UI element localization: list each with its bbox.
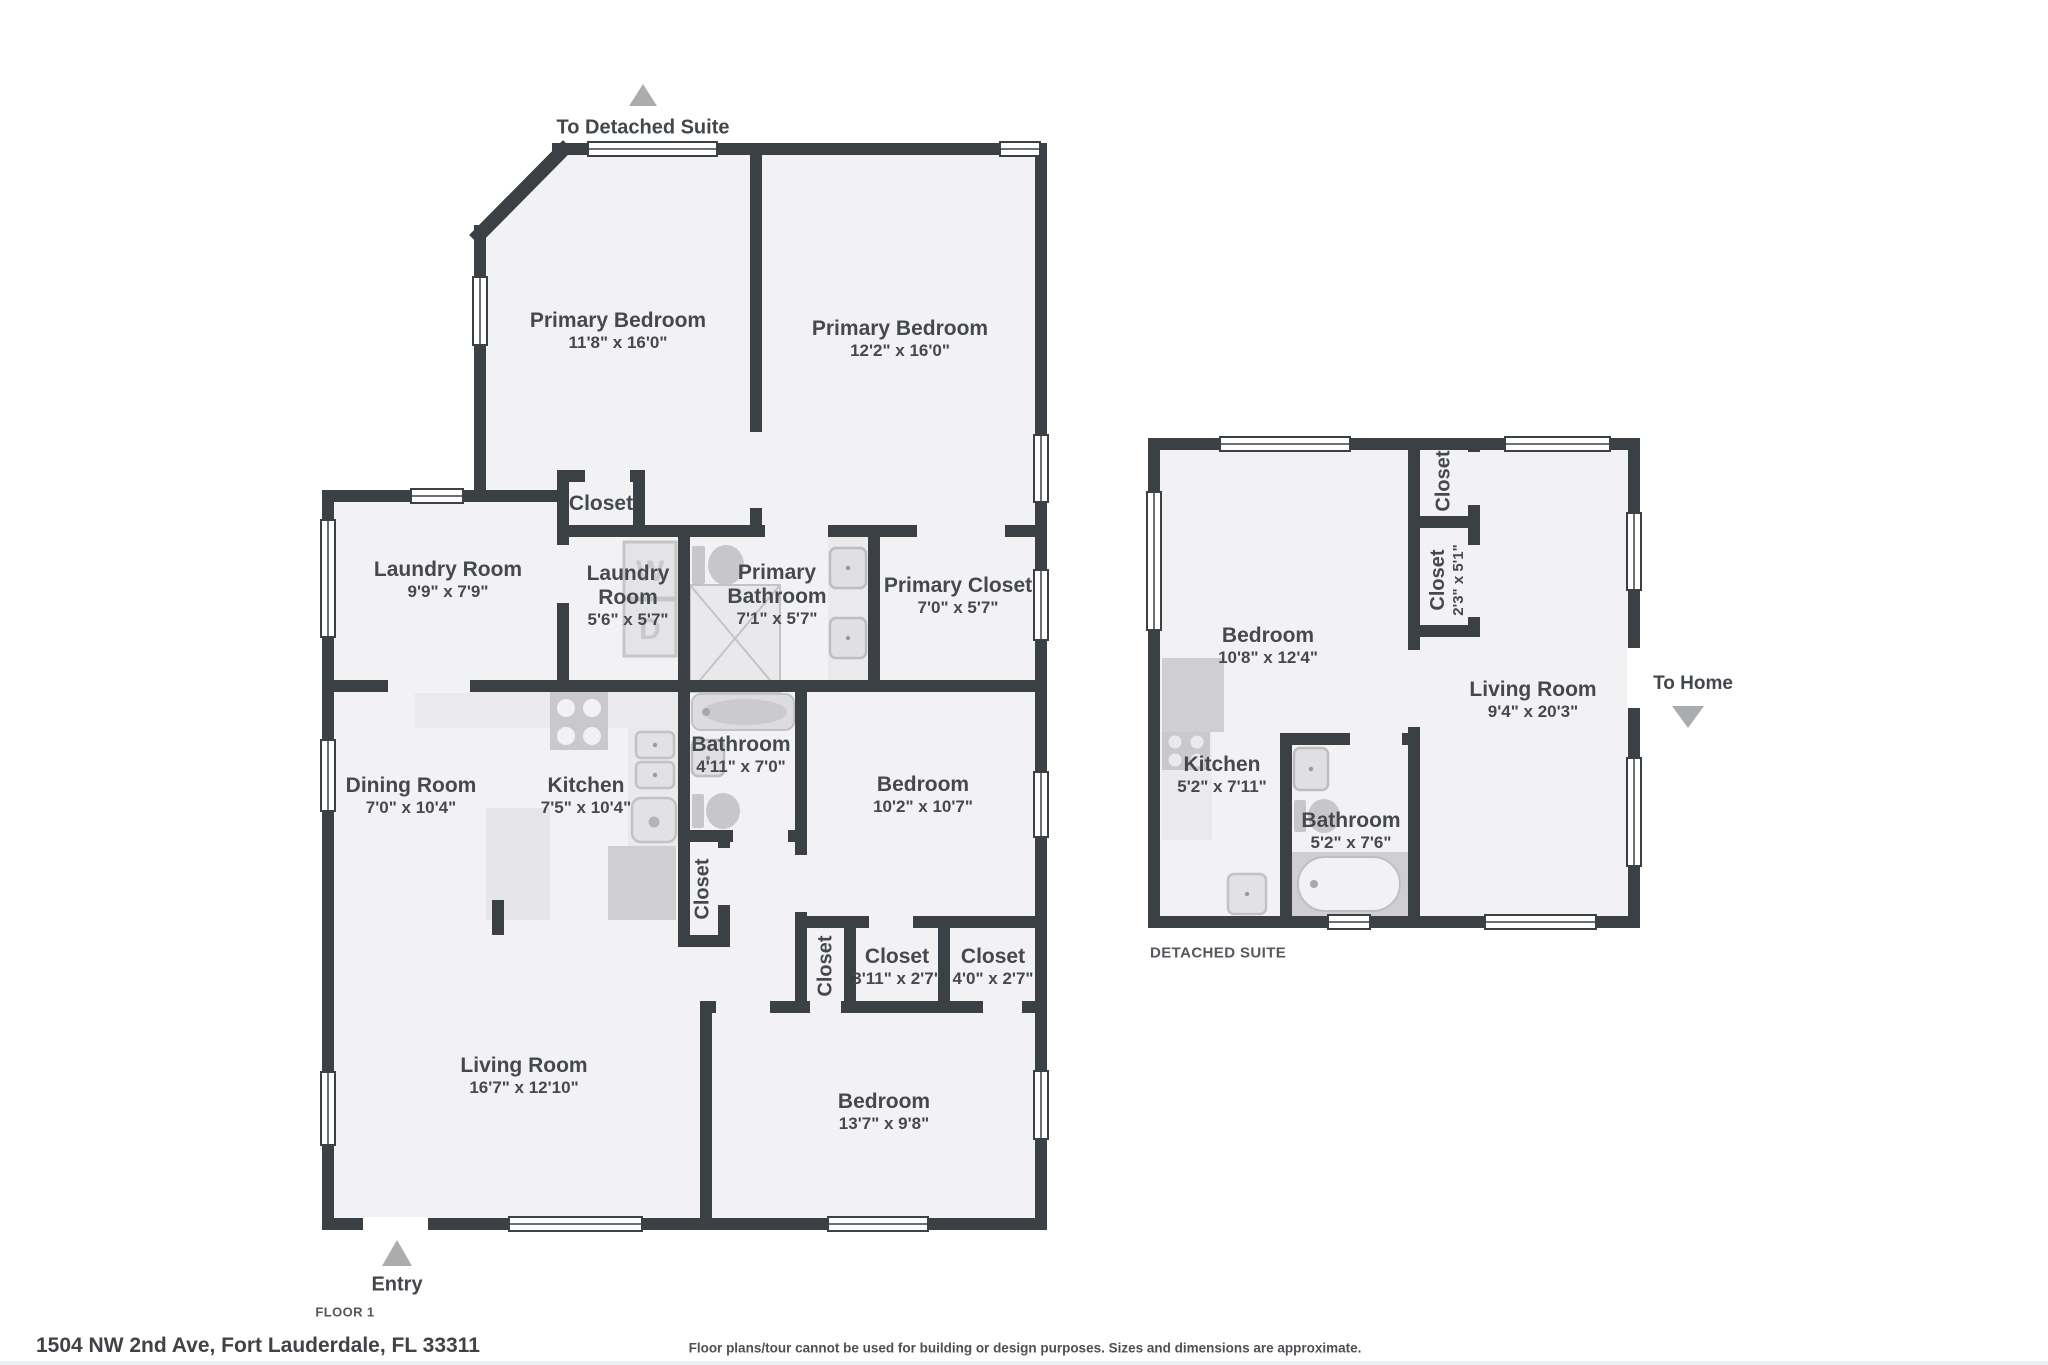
room-label-suite-living-room: Living Room 9'4" x 20'3" [1469,678,1596,722]
property-address: 1504 NW 2nd Ave, Fort Lauderdale, FL 333… [36,1334,480,1358]
room-label-bedroom-middle: Bedroom 10'2" x 10'7" [873,773,973,817]
room-label-closet-311: Closet 3'11" x 2'7" [852,945,941,989]
room-label-suite-bedroom: Bedroom 10'8" x 12'4" [1218,624,1318,668]
bottom-edge-divider [0,1361,2048,1365]
room-label-primary-bedroom-right: Primary Bedroom 12'2" x 16'0" [812,317,988,361]
disclaimer-text: Floor plans/tour cannot be used for buil… [689,1341,1362,1356]
kitchen-counter [415,692,678,728]
suite-bathtub-icon [1292,852,1408,916]
fridge-icon [608,846,676,920]
suite-fridge-icon [1162,658,1224,732]
room-label-primary-closet: Primary Closet 7'0" x 5'7" [884,574,1032,618]
room-label-closet-hall: Closet [692,858,715,919]
room-label-living-room: Living Room 16'7" x 12'10" [460,1054,587,1098]
room-label-closet-small: Closet [815,935,838,996]
room-label-laundry-room-large: Laundry Room 9'9" x 7'9" [374,558,522,602]
room-label-primary-bedroom-left: Primary Bedroom 11'8" x 16'0" [530,309,706,353]
bath-toilet-icon [692,793,740,829]
room-label-kitchen: Kitchen 7'5" x 10'4" [541,774,631,818]
detached-suite-caption: DETACHED SUITE [1150,945,1286,962]
suite-bath-sink-icon [1294,748,1328,790]
suite-kitchen-sink-icon [1228,874,1266,914]
entry-arrow-icon [382,1240,412,1266]
room-label-suite-bathroom: Bathroom 5'2" x 7'6" [1301,809,1400,853]
room-label-bathroom: Bathroom 4'11" x 7'0" [691,733,790,777]
stove-icon [550,692,608,750]
prep-sink-icon [632,798,676,842]
room-label-bedroom-bottom: Bedroom 13'7" x 9'8" [838,1090,930,1134]
room-label-closet-top: Closet [569,492,633,516]
entry-label: Entry [371,1274,422,1297]
room-label-closet-40: Closet 4'0" x 2'7" [953,945,1034,989]
to-home-label: To Home [1653,673,1733,695]
floor1-caption: FLOOR 1 [315,1305,374,1320]
room-label-suite-kitchen: Kitchen 5'2" x 7'11" [1177,753,1266,797]
room-label-suite-closet-top: Closet [1433,450,1456,511]
to-detached-suite-label: To Detached Suite [557,117,730,140]
floorplan-canvas: W D [0,0,2048,1365]
bathtub-icon [692,694,794,730]
room-label-laundry-room-small: Laundry Room 5'6" x 5'7" [578,562,678,630]
room-label-suite-closet-mid: Closet 2'3" x 5'1" [1427,544,1468,615]
floorplan-drawing: W D [0,0,2048,1365]
room-label-dining-room: Dining Room 7'0" x 10'4" [346,774,477,818]
room-label-primary-bathroom: Primary Bathroom 7'1" x 5'7" [711,561,843,629]
to-home-arrow-icon [1672,706,1704,728]
to-detached-suite-arrow-icon [629,84,657,106]
